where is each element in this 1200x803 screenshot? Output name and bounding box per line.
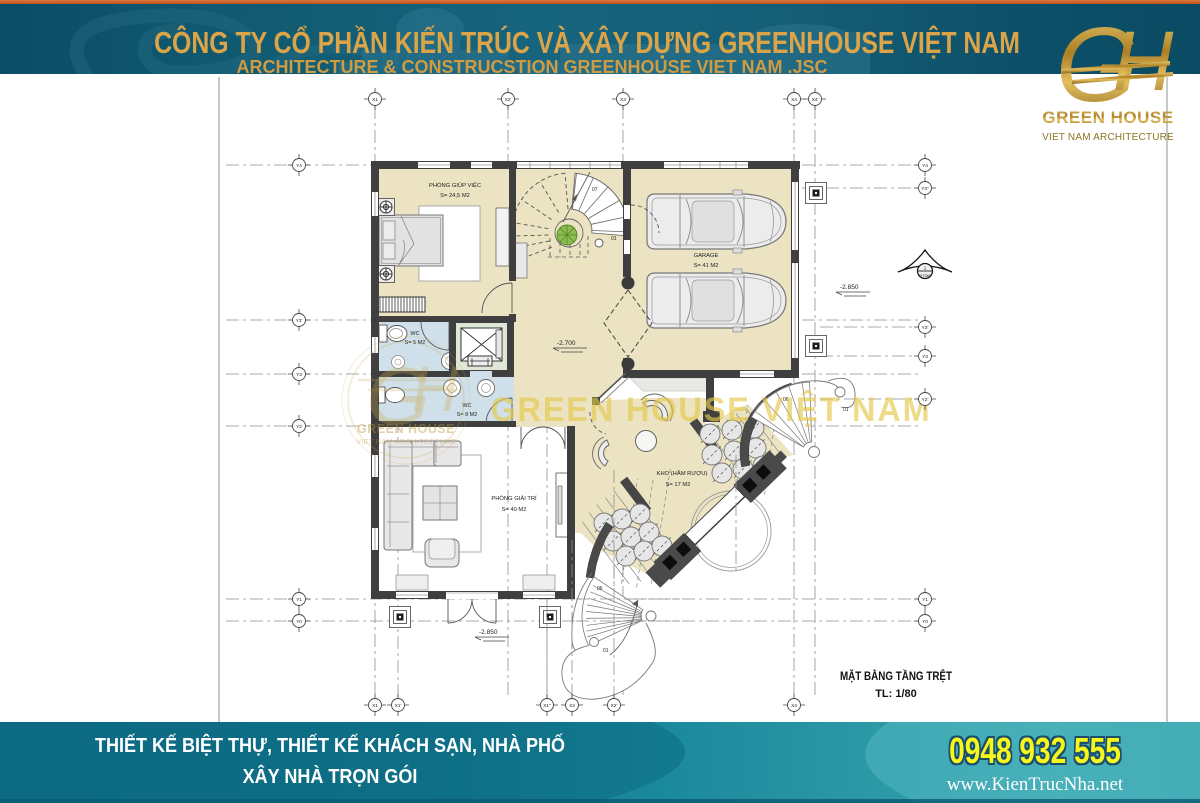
svg-text:X2: X2 [569, 703, 575, 709]
svg-text:Y3: Y3 [922, 354, 928, 360]
svg-text:Y2: Y2 [296, 424, 302, 430]
svg-text:X1: X1 [372, 97, 378, 103]
svg-text:Y0: Y0 [922, 619, 928, 625]
svg-text:Y2': Y2' [922, 397, 929, 403]
svg-text:Y0: Y0 [296, 619, 302, 625]
svg-text:Y3: Y3 [296, 372, 302, 378]
svg-text:PHÒNG GIẢI TRÍ: PHÒNG GIẢI TRÍ [491, 495, 537, 502]
svg-text:VIET NAM ARCHITECTURE: VIET NAM ARCHITECTURE [356, 437, 456, 446]
svg-text:Y3': Y3' [922, 325, 929, 331]
svg-text:Y4: Y4 [296, 163, 302, 169]
svg-text:TL: 1/80: TL: 1/80 [875, 688, 917, 700]
svg-text:X3: X3 [620, 97, 626, 103]
svg-text:GREEN HOUSE: GREEN HOUSE [1042, 108, 1173, 127]
svg-text:MẶT BẰNG TẦNG TRỆT: MẶT BẰNG TẦNG TRỆT [840, 669, 952, 683]
svg-text:X1': X1' [395, 703, 402, 709]
svg-text:Y1: Y1 [922, 597, 928, 603]
svg-text:S= 17 M2: S= 17 M2 [666, 482, 691, 488]
svg-text:GREEN HOUSE VIỆT NAM: GREEN HOUSE VIỆT NAM [490, 390, 931, 429]
svg-text:01: 01 [611, 236, 617, 242]
svg-text:X2': X2' [611, 703, 618, 709]
svg-text:-2.700: -2.700 [557, 340, 576, 347]
svg-text:X1: X1 [372, 703, 378, 709]
svg-text:S= 41 M2: S= 41 M2 [694, 263, 719, 269]
svg-text:GARAGE: GARAGE [694, 253, 719, 259]
svg-text:PHÒNG GIÚP VIỆC: PHÒNG GIÚP VIỆC [429, 181, 481, 189]
svg-text:-2.850: -2.850 [479, 629, 498, 636]
svg-text:KHO (HẦM RƯỢU): KHO (HẦM RƯỢU) [657, 470, 708, 477]
svg-text:07: 07 [592, 187, 598, 193]
svg-text:VIET NAM ARCHITECTURE: VIET NAM ARCHITECTURE [1042, 132, 1174, 143]
svg-text:S= 8 M2: S= 8 M2 [457, 412, 478, 418]
svg-text:X4: X4 [791, 703, 797, 709]
svg-text:-2.850: -2.850 [840, 284, 859, 291]
svg-text:X1": X1" [543, 703, 551, 709]
svg-text:Y3': Y3' [296, 318, 303, 324]
svg-text:Y4: Y4 [922, 163, 928, 169]
svg-text:Y1: Y1 [296, 597, 302, 603]
svg-text:ĐTGM: ĐTGM [919, 274, 930, 278]
svg-text:S= 24,5 M2: S= 24,5 M2 [440, 193, 470, 199]
svg-text:X4: X4 [791, 97, 797, 103]
svg-text:S= 40 M2: S= 40 M2 [502, 507, 527, 513]
svg-text:06: 06 [597, 586, 603, 592]
svg-text:H: H [1113, 14, 1174, 108]
svg-text:Y3": Y3" [921, 186, 929, 192]
svg-text:GREEN HOUSE: GREEN HOUSE [357, 422, 455, 436]
svg-text:X2': X2' [505, 97, 512, 103]
svg-text:01: 01 [603, 648, 609, 654]
svg-text:X4': X4' [812, 97, 819, 103]
